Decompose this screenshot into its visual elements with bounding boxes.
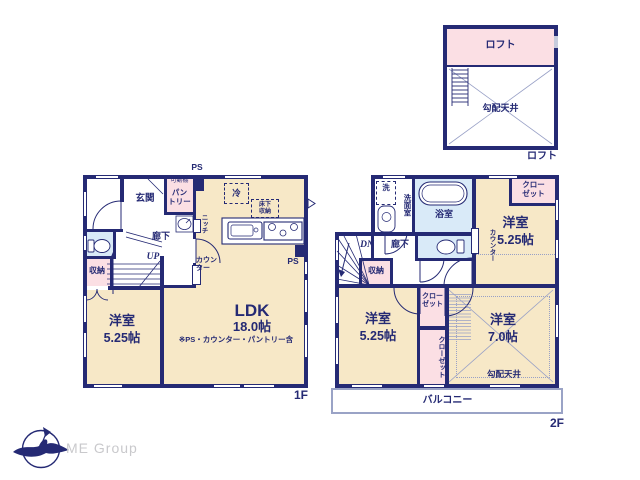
floor2-label: 2F bbox=[536, 417, 564, 431]
bedroom-c-name: 洋室 bbox=[455, 313, 551, 328]
closet-b-label: クロー ゼット bbox=[420, 293, 445, 309]
ldk-name: LDK bbox=[200, 301, 304, 321]
bird-icon bbox=[13, 439, 69, 456]
bedroom-b-name: 洋室 bbox=[339, 312, 417, 327]
bathtub bbox=[419, 182, 467, 205]
floor1-label: 1F bbox=[280, 389, 308, 403]
ldk-size: 18.0帖 bbox=[200, 320, 304, 335]
toilet-1f bbox=[88, 240, 110, 253]
ldk-note: ※PS・カウンター・パントリー含 bbox=[166, 336, 306, 345]
niche-label: ニッチ bbox=[197, 210, 207, 238]
bedroom-b-door-arc bbox=[394, 288, 420, 314]
toilet-2f bbox=[437, 240, 464, 254]
ps-label-side: PS bbox=[281, 257, 305, 267]
loft-ladder bbox=[452, 68, 468, 106]
washer-label: 洗 bbox=[377, 184, 395, 193]
bedroom-a-name: 洋室 bbox=[476, 216, 555, 231]
washbasin-1f bbox=[176, 216, 193, 232]
storage-1f-label: 収納 bbox=[83, 266, 111, 275]
bathroom-label: 浴室 bbox=[426, 209, 462, 219]
loft-label: ロフト bbox=[447, 40, 554, 52]
hallway-2f-label: 廊下 bbox=[383, 239, 417, 249]
ps-label-top: PS bbox=[186, 163, 208, 173]
sloped-ceiling-loft-label: 勾配天井 bbox=[447, 103, 554, 113]
hallway-1f-label: 廊下 bbox=[143, 231, 179, 241]
toilet-2f-door-arc bbox=[420, 258, 444, 282]
bedroom-1f-door-arcs bbox=[86, 289, 108, 300]
loft-caption: ロフト bbox=[517, 151, 557, 163]
closet-a-label: クロー ゼット bbox=[512, 181, 555, 198]
closet-c-label: クローゼット bbox=[420, 333, 445, 381]
vent-mark bbox=[308, 199, 315, 208]
entrance-door-arc bbox=[93, 201, 121, 229]
bedroom-a-door-arc bbox=[444, 258, 472, 286]
company-logo-text: ME Group bbox=[66, 440, 138, 456]
bedroom-c-door-arc bbox=[445, 288, 473, 316]
bedroom-b-size: 5.25帖 bbox=[339, 329, 417, 343]
washbasin-2f bbox=[378, 206, 395, 232]
balcony-label: バルコニー bbox=[390, 395, 505, 407]
bedroom-1f-name: 洋室 bbox=[85, 314, 159, 329]
stairs-down-label: DN bbox=[355, 240, 379, 251]
entrance-label: 玄関 bbox=[125, 194, 165, 205]
pantry-label: パン トリー bbox=[166, 189, 193, 206]
bedroom-a-size: 5.25帖 bbox=[476, 233, 555, 247]
movable-shelf-label: 可動棚 bbox=[166, 178, 193, 185]
bedroom-c-size: 7.0帖 bbox=[455, 330, 551, 344]
bedroom-1f-size: 5.25帖 bbox=[85, 331, 159, 345]
storage-2f-label: 収納 bbox=[362, 266, 390, 275]
washroom-label: 洗面室 bbox=[398, 183, 411, 227]
floorplan-canvas: 冷 床下 収納 bbox=[0, 0, 640, 480]
company-logo-icon bbox=[13, 427, 69, 468]
kitchen-counter bbox=[222, 218, 304, 244]
stairs-up-label: UP bbox=[140, 252, 166, 263]
sloped-ceiling-2f-label: 勾配天井 bbox=[476, 370, 532, 380]
counter-1f-label: カウン ター bbox=[196, 257, 226, 273]
